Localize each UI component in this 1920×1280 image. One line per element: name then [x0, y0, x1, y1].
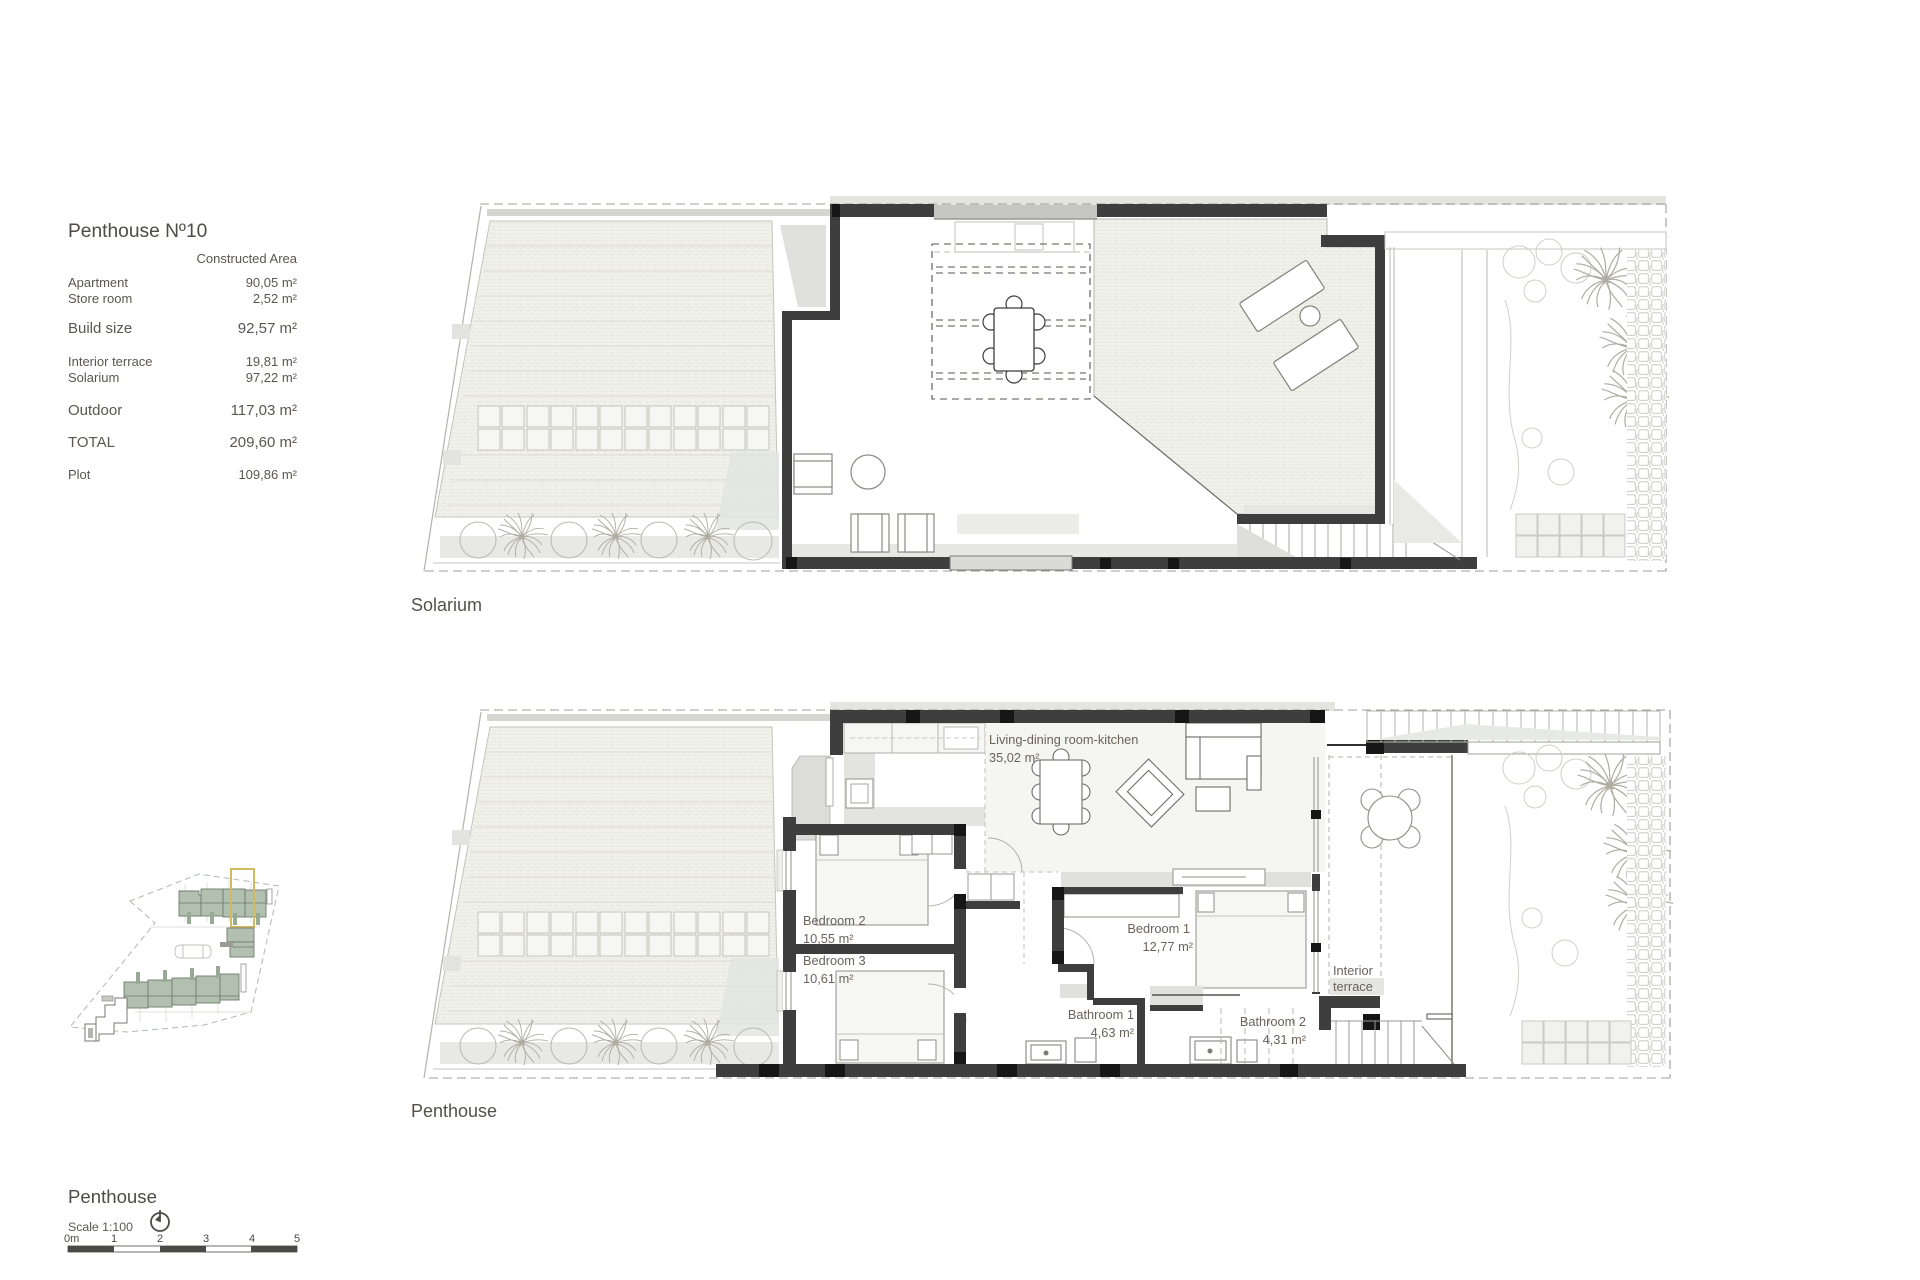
- svg-text:Apartment: Apartment: [68, 275, 128, 290]
- svg-text:5: 5: [294, 1233, 300, 1245]
- svg-text:Store room: Store room: [68, 291, 132, 306]
- svg-text:Solarium: Solarium: [411, 595, 482, 615]
- svg-text:Bathroom 2: Bathroom 2: [1240, 1014, 1306, 1029]
- svg-text:Build size: Build size: [68, 320, 132, 337]
- svg-text:Outdoor: Outdoor: [68, 402, 122, 419]
- svg-text:209,60 m²: 209,60 m²: [229, 434, 297, 451]
- svg-text:Penthouse: Penthouse: [68, 1186, 157, 1207]
- svg-text:Bedroom 3: Bedroom 3: [803, 953, 866, 968]
- svg-text:terrace: terrace: [1333, 979, 1373, 994]
- svg-text:92,57 m²: 92,57 m²: [238, 320, 297, 337]
- svg-text:4: 4: [249, 1233, 255, 1245]
- svg-text:TOTAL: TOTAL: [68, 434, 115, 451]
- svg-text:Penthouse: Penthouse: [411, 1101, 497, 1121]
- svg-text:Penthouse Nº10: Penthouse Nº10: [68, 221, 207, 242]
- svg-text:19,81 m²: 19,81 m²: [246, 354, 298, 369]
- svg-text:10,61 m²: 10,61 m²: [803, 971, 854, 986]
- svg-text:1: 1: [111, 1233, 117, 1245]
- svg-text:Bedroom 2: Bedroom 2: [803, 913, 866, 928]
- svg-text:4,31 m²: 4,31 m²: [1263, 1032, 1307, 1047]
- svg-text:35,02 m²: 35,02 m²: [989, 750, 1040, 765]
- svg-text:10,55 m²: 10,55 m²: [803, 931, 854, 946]
- svg-text:12,77 m²: 12,77 m²: [1142, 939, 1193, 954]
- svg-text:Interior: Interior: [1333, 963, 1374, 978]
- svg-text:Living-dining room-kitchen: Living-dining room-kitchen: [989, 732, 1138, 747]
- svg-text:3: 3: [203, 1233, 209, 1245]
- svg-text:2: 2: [157, 1233, 163, 1245]
- svg-text:90,05 m²: 90,05 m²: [246, 275, 298, 290]
- svg-text:Scale 1:100: Scale 1:100: [68, 1220, 133, 1234]
- svg-text:Plot: Plot: [68, 467, 91, 482]
- svg-text:97,22 m²: 97,22 m²: [246, 370, 298, 385]
- svg-text:Solarium: Solarium: [68, 370, 119, 385]
- svg-text:0m: 0m: [64, 1233, 79, 1245]
- svg-text:Interior terrace: Interior terrace: [68, 354, 153, 369]
- svg-text:Bedroom 1: Bedroom 1: [1127, 921, 1190, 936]
- svg-text:4,63 m²: 4,63 m²: [1091, 1025, 1135, 1040]
- svg-text:Bathroom 1: Bathroom 1: [1068, 1007, 1134, 1022]
- svg-text:Constructed Area: Constructed Area: [197, 251, 298, 266]
- svg-text:2,52 m²: 2,52 m²: [253, 291, 298, 306]
- svg-text:109,86 m²: 109,86 m²: [238, 467, 297, 482]
- svg-text:117,03 m²: 117,03 m²: [231, 402, 297, 419]
